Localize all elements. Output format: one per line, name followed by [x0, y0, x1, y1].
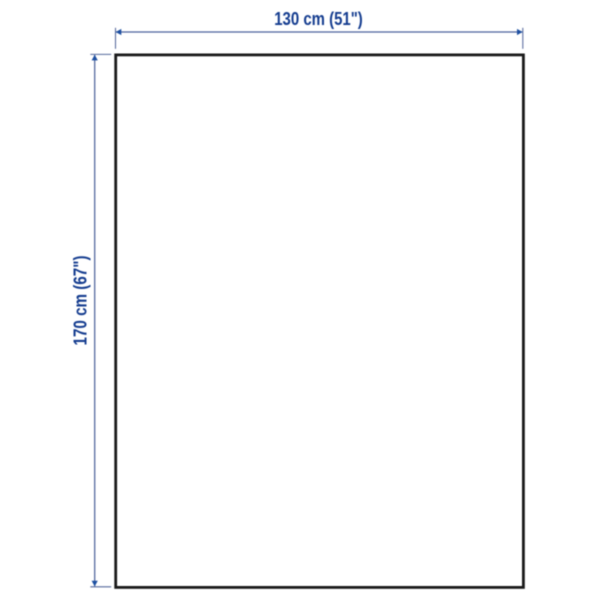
svg-text:170 cm (67"): 170 cm (67")	[70, 255, 90, 345]
svg-text:130 cm (51"): 130 cm (51")	[274, 9, 363, 29]
